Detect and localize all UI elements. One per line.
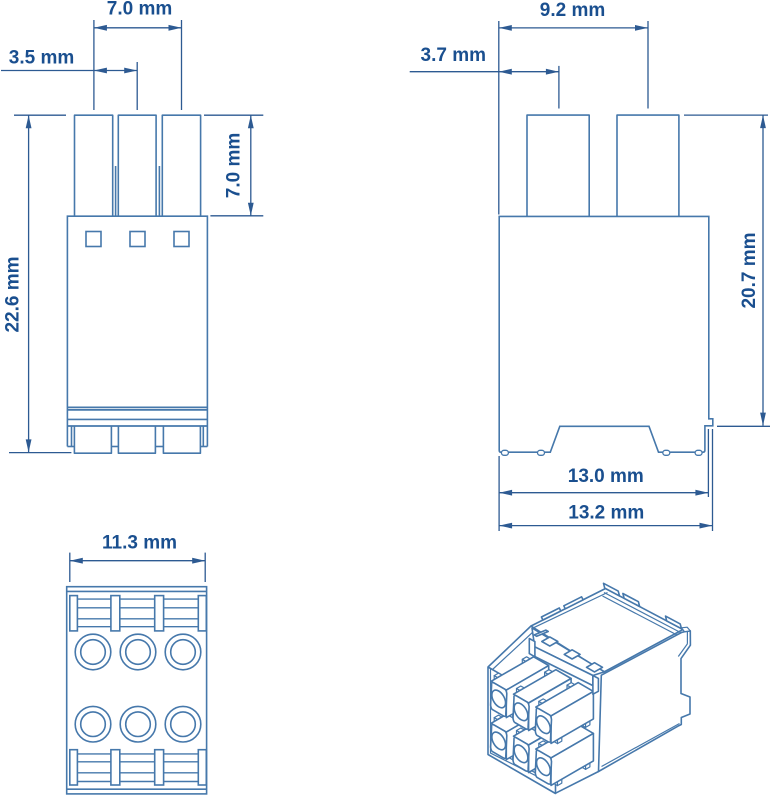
- svg-text:9.2 mm: 9.2 mm: [540, 0, 605, 21]
- svg-text:13.2 mm: 13.2 mm: [568, 503, 644, 524]
- svg-text:7.0 mm: 7.0 mm: [107, 0, 172, 20]
- svg-text:11.3 mm: 11.3 mm: [102, 533, 177, 554]
- svg-text:3.7 mm: 3.7 mm: [421, 45, 486, 66]
- svg-text:7.0 mm: 7.0 mm: [224, 133, 245, 198]
- svg-text:3.5 mm: 3.5 mm: [9, 48, 74, 69]
- svg-text:13.0 mm: 13.0 mm: [568, 466, 644, 487]
- svg-text:22.6 mm: 22.6 mm: [3, 256, 24, 332]
- svg-text:20.7 mm: 20.7 mm: [739, 232, 760, 308]
